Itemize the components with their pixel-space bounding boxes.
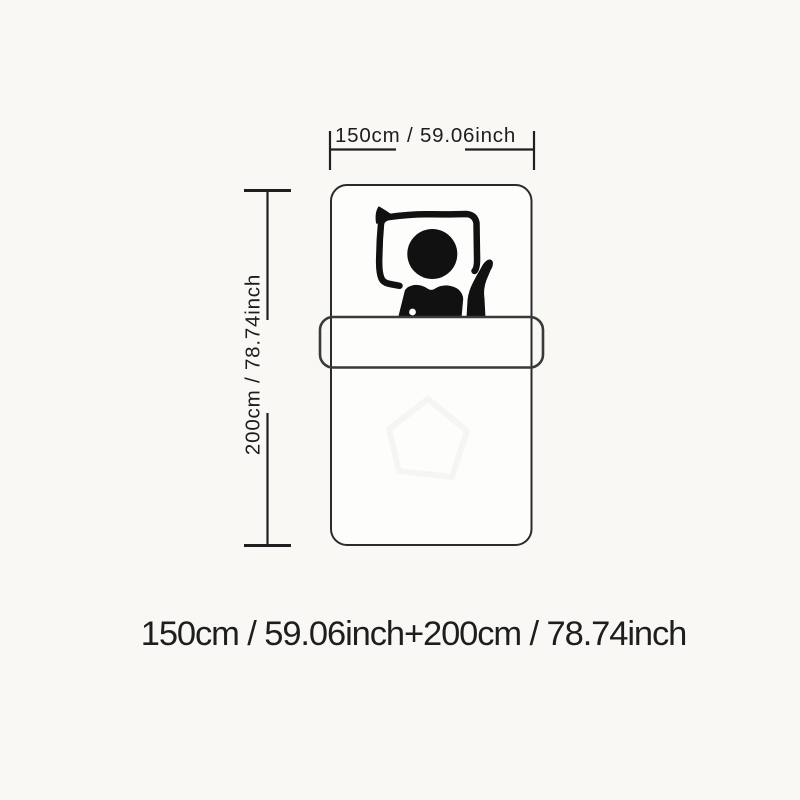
svg-text:150cm / 59.06inch: 150cm / 59.06inch [335, 124, 516, 147]
svg-text:200cm / 78.74inch: 200cm / 78.74inch [242, 274, 265, 455]
svg-text:150cm / 59.06inch+200cm / 78.7: 150cm / 59.06inch+200cm / 78.74inch [141, 615, 687, 653]
